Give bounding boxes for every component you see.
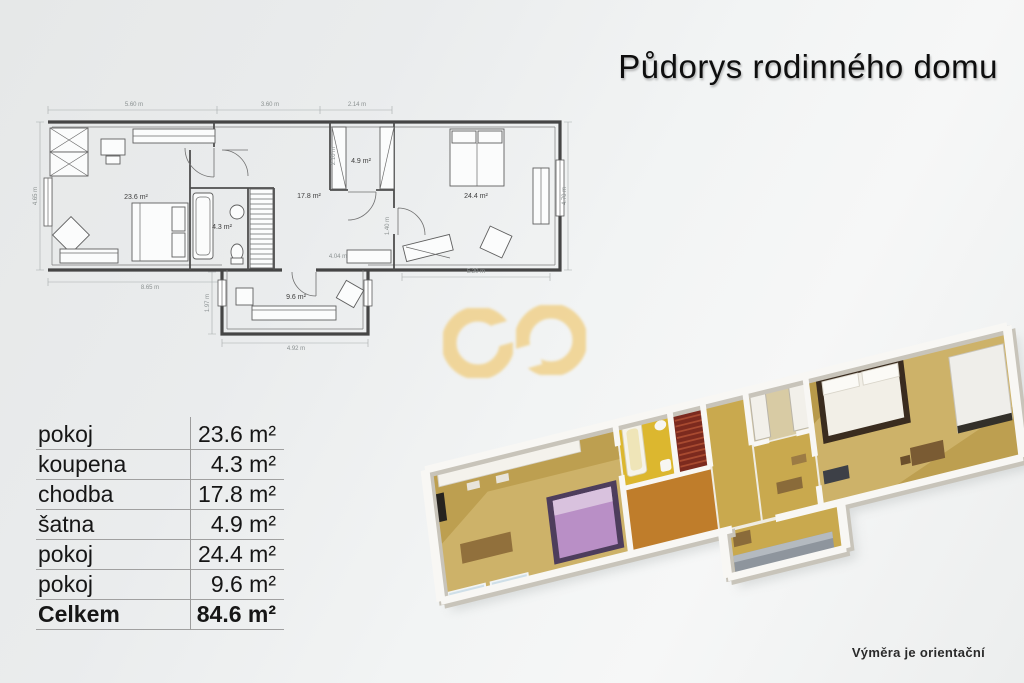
room-name: pokoj: [36, 571, 158, 598]
room-label-small: 9.6 m²: [286, 294, 307, 301]
svg-text:4.92 m: 4.92 m: [287, 346, 305, 352]
svg-text:4.70 m: 4.70 m: [562, 187, 568, 205]
room-area: 4.3 m²: [158, 451, 284, 478]
room-label-hall: 17.8 m²: [297, 193, 321, 200]
svg-text:3.60 m: 3.60 m: [261, 102, 279, 108]
table-row: pokoj 23.6 m²: [36, 420, 284, 450]
svg-text:2.14 m: 2.14 m: [348, 102, 366, 108]
room-area: 9.6 m²: [158, 571, 284, 598]
table-row: chodba 17.8 m²: [36, 480, 284, 510]
interior-walls: [190, 122, 394, 270]
room-area: 24.4 m²: [158, 541, 284, 568]
real-estate-floorplan-image: 23.6 m² 4.3 m² 17.8 m² 4.9 m² 24.4 m² 9.…: [0, 0, 1024, 683]
svg-text:1.97 m: 1.97 m: [205, 294, 211, 312]
table-total-row: Celkem 84.6 m²: [36, 600, 284, 630]
table-row: koupena 4.3 m²: [36, 450, 284, 480]
svg-text:4.04 m: 4.04 m: [329, 254, 347, 260]
svg-text:8.65 m: 8.65 m: [141, 285, 159, 291]
total-value: 84.6 m²: [158, 601, 284, 628]
svg-text:1.40 m: 1.40 m: [385, 217, 391, 235]
total-label: Celkem: [36, 601, 158, 628]
table-row: pokoj 9.6 m²: [36, 570, 284, 600]
room-label-bath: 4.3 m²: [212, 224, 233, 231]
room-name: pokoj: [36, 541, 158, 568]
svg-text:5.20 m: 5.20 m: [467, 269, 485, 275]
logo-right-link-icon: [522, 311, 580, 369]
room-area: 23.6 m²: [158, 421, 284, 448]
page-title: Půdorys rodinného domu: [618, 48, 998, 86]
svg-text:2.10 m: 2.10 m: [331, 147, 337, 165]
table-row: šatna 4.9 m²: [36, 510, 284, 540]
room-name: chodba: [36, 481, 158, 508]
floorplan-3d: [425, 324, 1024, 661]
room-label-closet: 4.9 m²: [351, 158, 372, 165]
table-row: pokoj 24.4 m²: [36, 540, 284, 570]
room-label-bedroom: 24.4 m²: [464, 193, 488, 200]
room-area: 17.8 m²: [158, 481, 284, 508]
room-name: koupena: [36, 451, 158, 478]
room-label-living: 23.6 m²: [124, 194, 148, 201]
area-table: pokoj 23.6 m² koupena 4.3 m² chodba 17.8…: [36, 420, 284, 630]
room-name: pokoj: [36, 421, 158, 448]
room-area: 4.9 m²: [158, 511, 284, 538]
watermark-logo: [449, 311, 580, 372]
stairs-2d: [250, 189, 273, 268]
svg-text:5.60 m: 5.60 m: [125, 102, 143, 108]
room-name: šatna: [36, 511, 158, 538]
svg-text:4.65 m: 4.65 m: [33, 187, 39, 205]
footnote: Výměra je orientační: [852, 645, 985, 660]
logo-left-link-icon: [449, 314, 507, 372]
